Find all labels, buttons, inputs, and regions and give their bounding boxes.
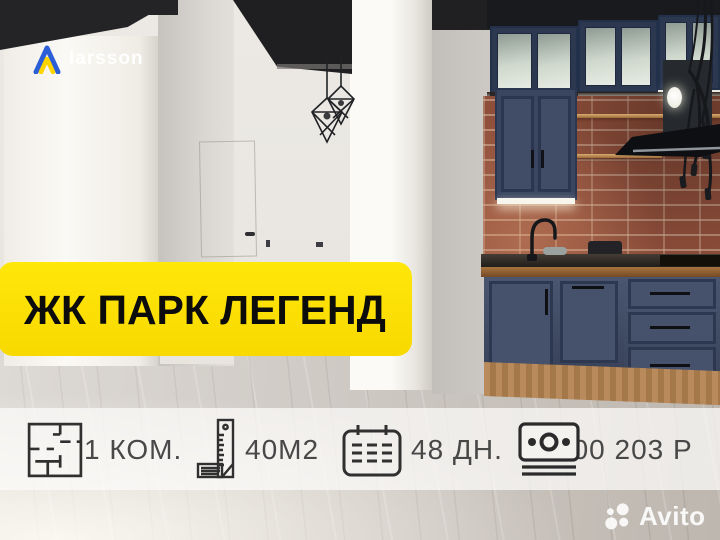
cabinet-handle [545,289,548,315]
pendant-lights [290,40,370,160]
brand-name: larsson [69,48,144,70]
avito-label: Avito [639,501,706,532]
avito-logo-icon [604,503,636,531]
counter-wood-edge [481,267,720,277]
larsson-a-icon [32,44,62,74]
ceiling-edge [146,0,178,15]
floor-plan-icon [26,421,84,479]
range-hood [600,118,720,164]
lower-cabinet-doors [484,277,624,372]
ruler-icon [196,417,242,483]
rooms-label: 1 КОМ. [84,434,182,466]
door-handle [245,232,255,236]
ceiling-right [432,0,494,30]
pendant-cords [610,0,720,210]
cabinet-handle [572,286,604,289]
avito-watermark: Avito [604,501,706,532]
days-label: 48 ДН. [411,434,503,466]
faucet [515,203,570,263]
hidden-door [199,141,257,258]
money-icon [518,420,582,480]
wall-socket [316,242,323,247]
upper-glass-cabinet [490,26,578,97]
area-label: 40М2 [245,434,319,466]
listing-image: ЖК ПАРК ЛЕГЕНД 1 КОМ. 40М2 [0,0,720,540]
blue-wall-cabinet [495,88,577,200]
cooktop [660,255,720,266]
banner-title: ЖК ПАРК ЛЕГЕНД [24,262,386,356]
wall-socket [266,240,270,247]
title-banner: ЖК ПАРК ЛЕГЕНД [0,262,412,356]
info-bar: 1 КОМ. 40М2 48 ДН. 800 203 Р [0,408,720,490]
brand-logo: larsson [32,44,144,74]
calendar-icon [340,423,404,479]
